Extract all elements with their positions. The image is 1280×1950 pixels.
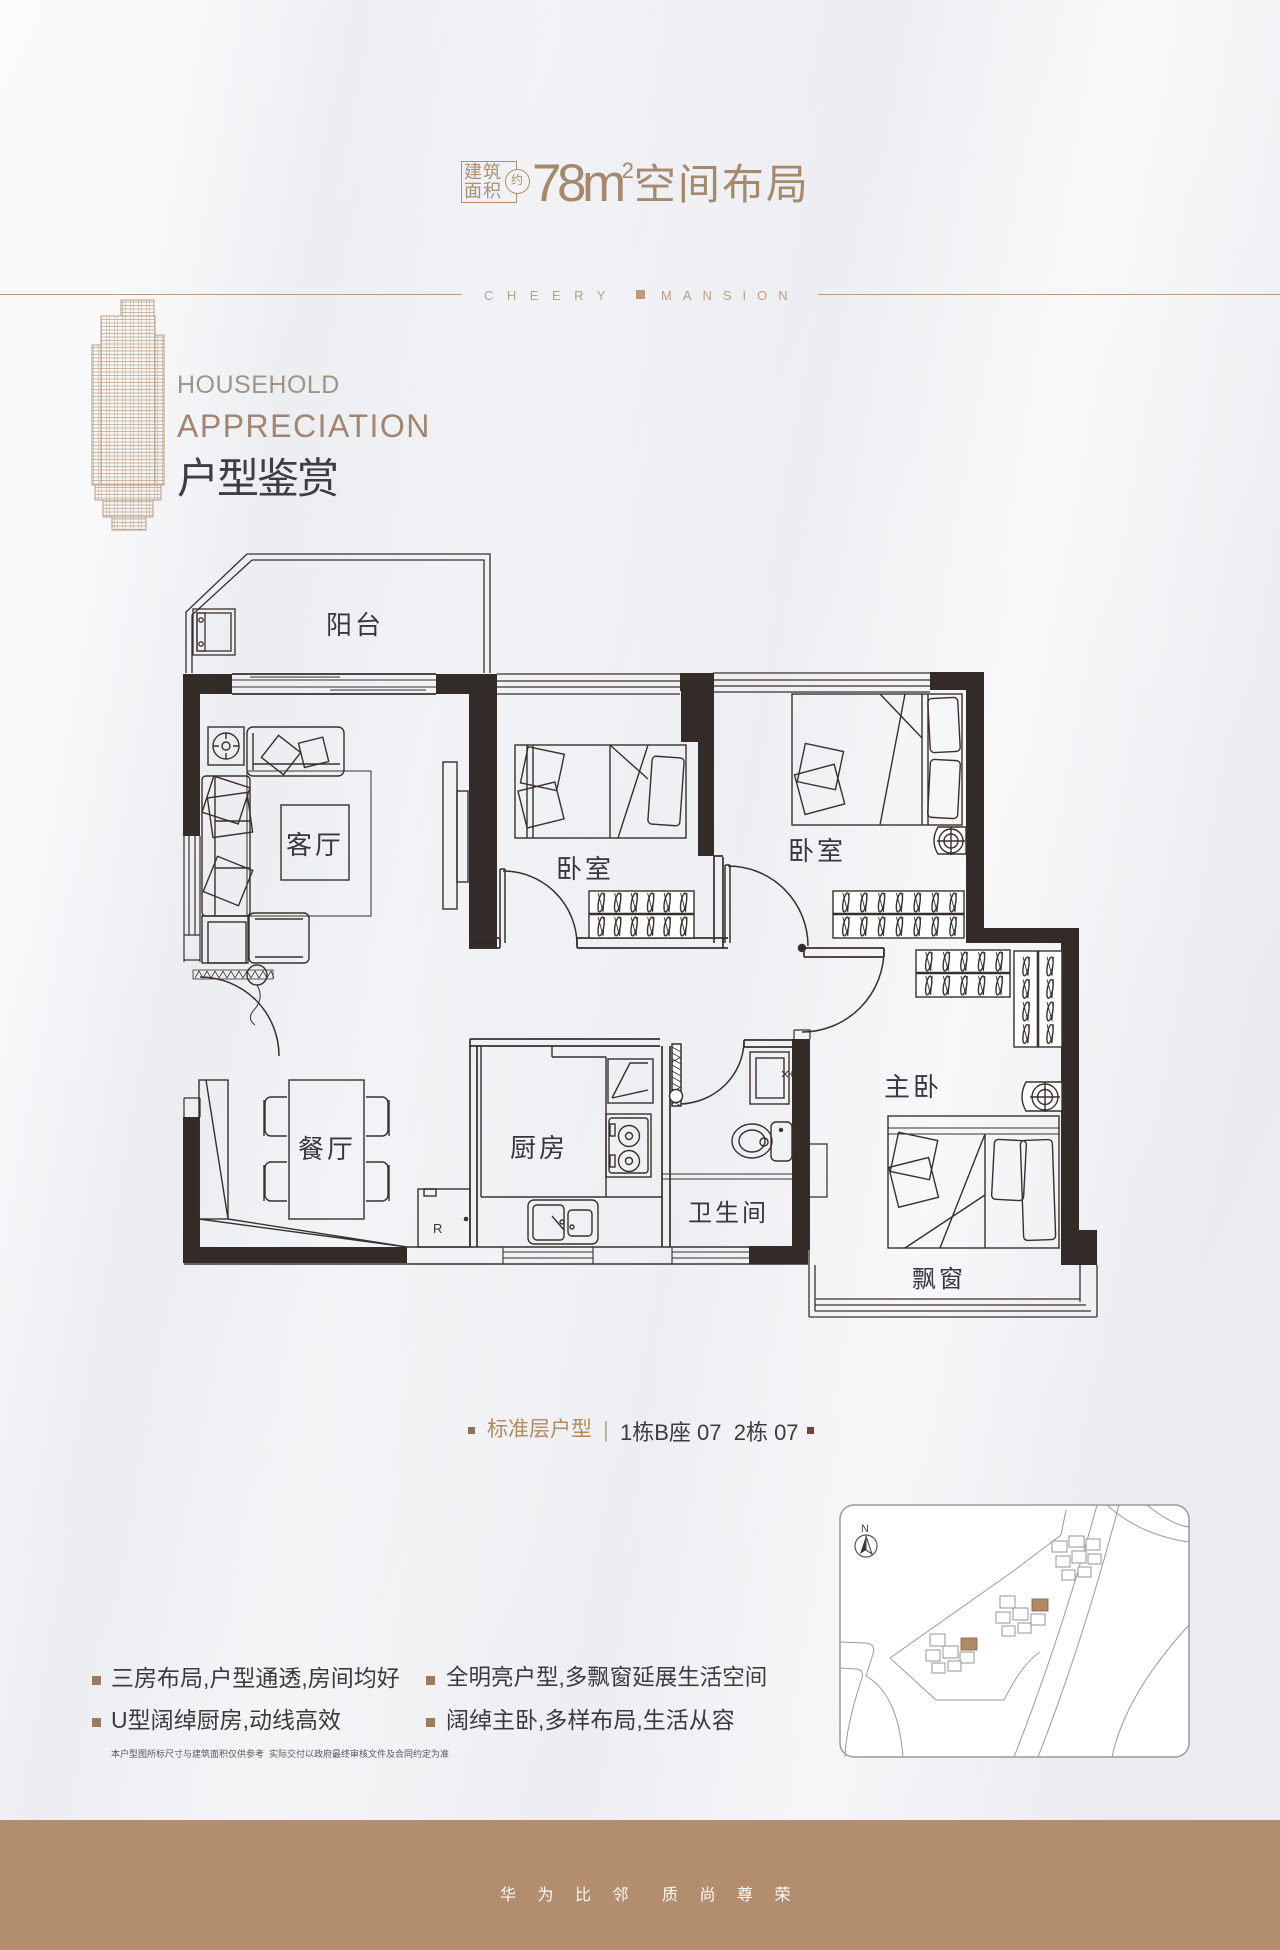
svg-text:主卧: 主卧 <box>884 1072 942 1102</box>
svg-text:卧室: 卧室 <box>788 836 846 866</box>
svg-text:卫生间: 卫生间 <box>688 1200 769 1227</box>
svg-text:厨房: 厨房 <box>510 1133 568 1163</box>
svg-text:飘窗: 飘窗 <box>912 1266 966 1293</box>
svg-text:R: R <box>433 1221 442 1236</box>
svg-text:阳台: 阳台 <box>326 610 384 640</box>
svg-text:餐厅: 餐厅 <box>298 1134 356 1164</box>
svg-text:客厅: 客厅 <box>286 830 344 860</box>
svg-text:N: N <box>861 1523 869 1535</box>
svg-text:卧室: 卧室 <box>556 854 614 884</box>
